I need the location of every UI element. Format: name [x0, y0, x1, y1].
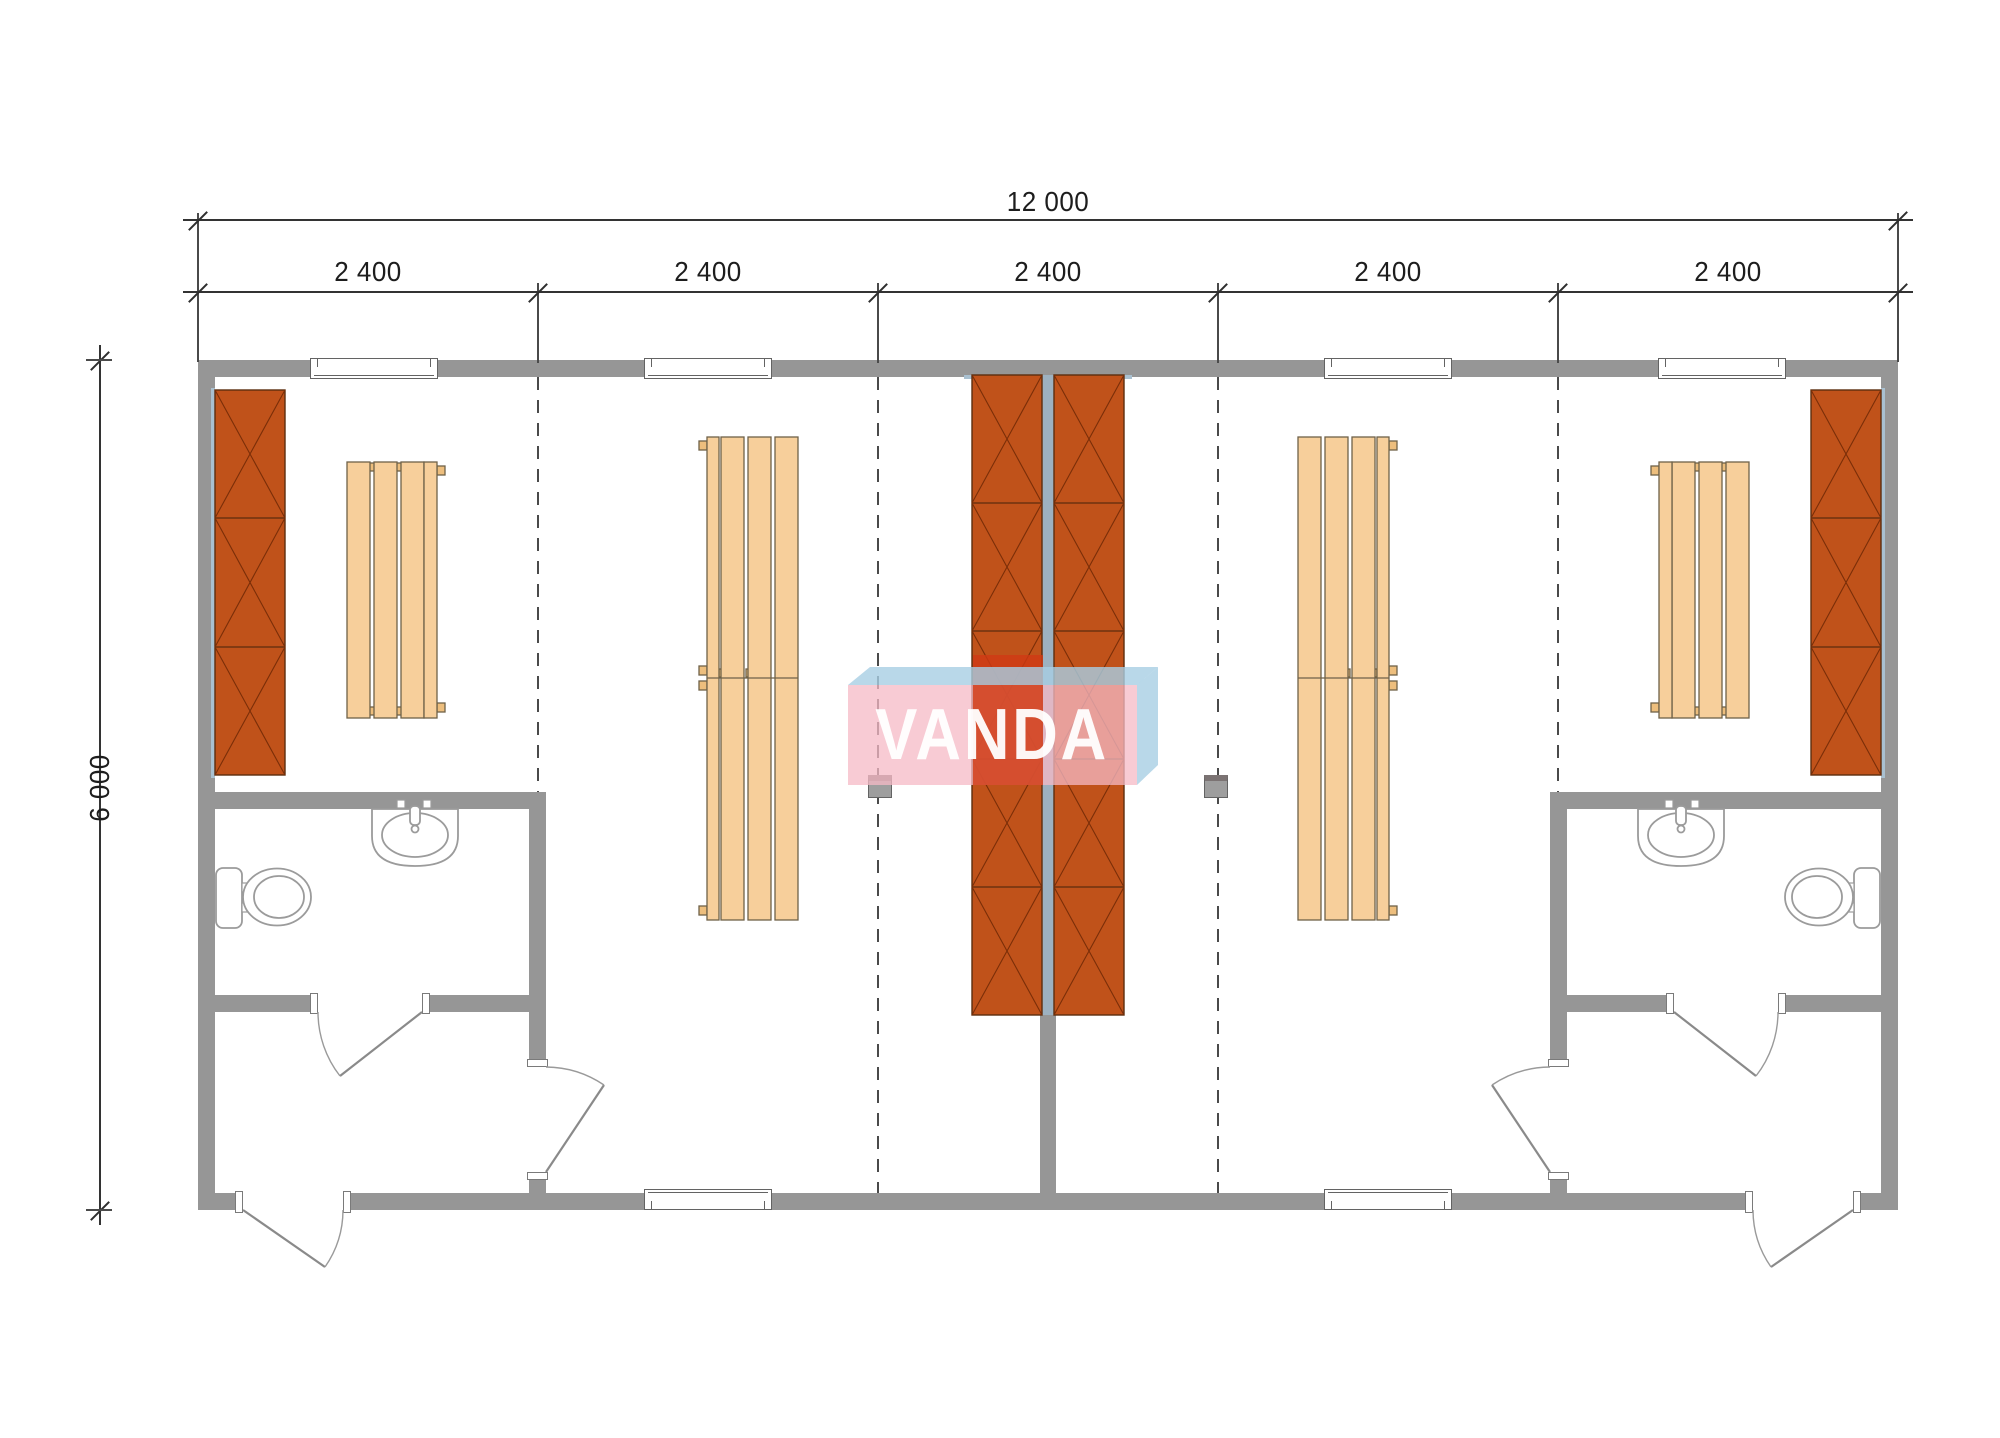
bench-table-long: [1298, 437, 1397, 920]
floor-plan-canvas: 12 000 2 400 2 400 2 400 2 400 2 400 6 0…: [0, 0, 2000, 1438]
door-swing-bathroom: [1674, 1012, 1778, 1076]
bench-table-short: [1651, 462, 1749, 718]
dimension-label-module: 2 400: [1663, 256, 1793, 288]
door-swing-entrance: [1753, 1210, 1853, 1267]
center-wardrobe-panel: [1054, 375, 1124, 1015]
dimension-label-module: 2 400: [1323, 256, 1453, 288]
dimension-line: [183, 291, 1913, 293]
dimension-label-module: 2 400: [303, 256, 433, 288]
extension-line: [86, 359, 112, 360]
toilet: [1785, 868, 1880, 928]
dimension-label-module: 2 400: [643, 256, 773, 288]
dimension-label-module: 2 400: [983, 256, 1113, 288]
door-swing-vestibule: [1492, 1067, 1550, 1172]
wardrobe-cabinet: [1811, 390, 1881, 775]
dimension-label-total: 12 000: [983, 186, 1113, 218]
dimension-line: [183, 219, 1913, 221]
sink: [1638, 800, 1724, 866]
dimension-label-height: 6 000: [84, 723, 116, 853]
extension-line: [86, 1209, 112, 1210]
